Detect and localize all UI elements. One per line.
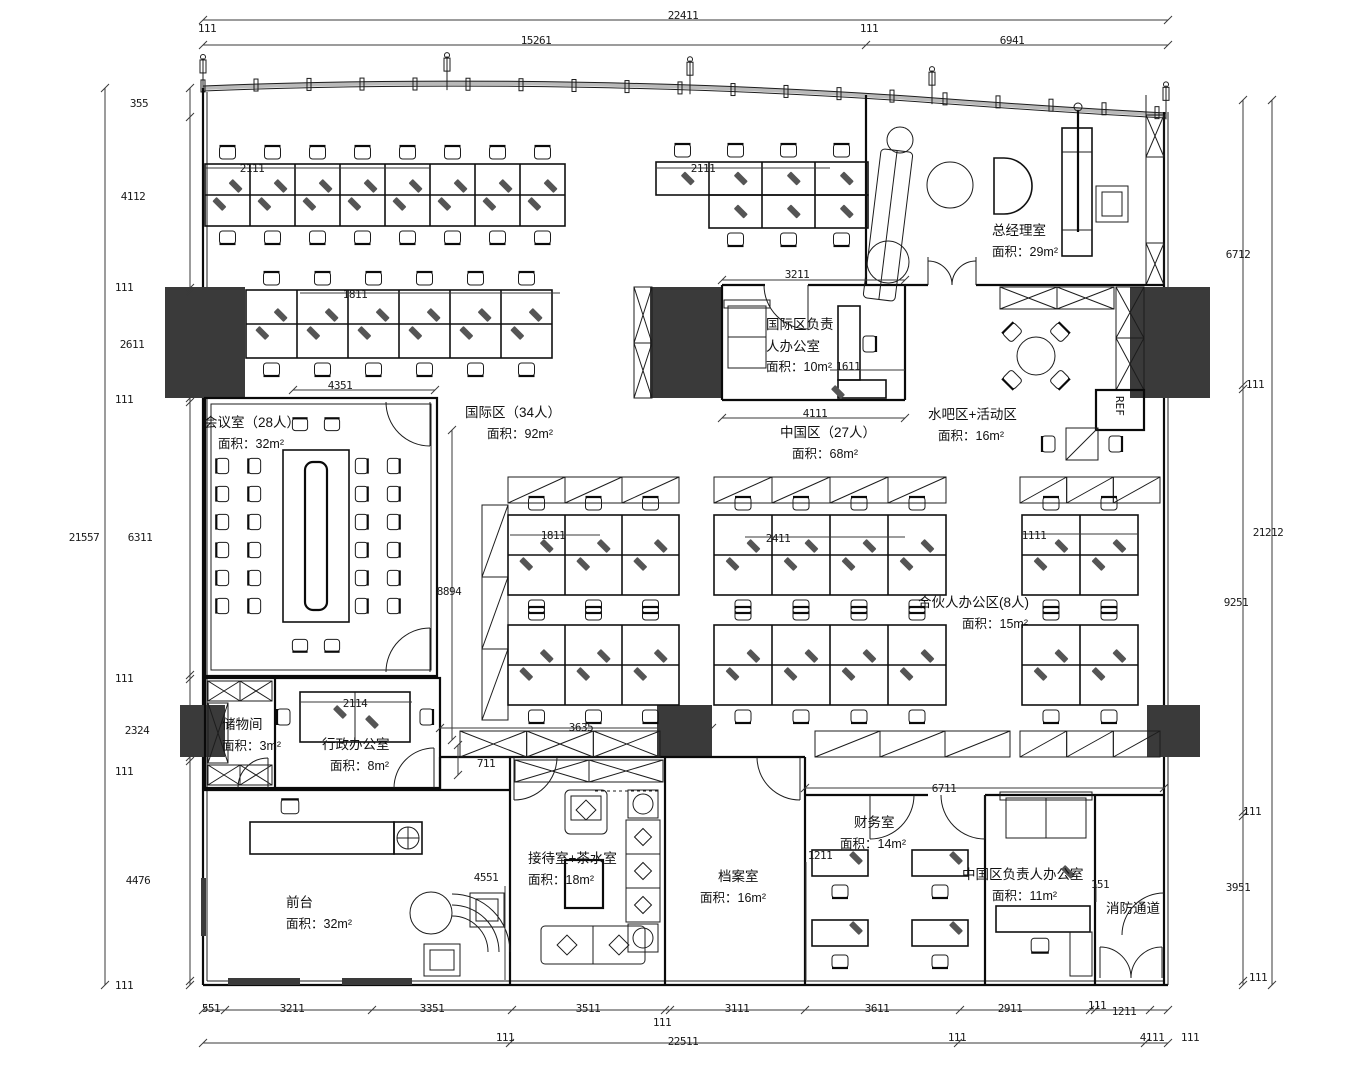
dimension-label: 8894 [437, 585, 462, 598]
dimension-label: 6711 [932, 782, 957, 795]
dimension-label: 3211 [280, 1002, 305, 1015]
dimension-label: 1111 [1022, 529, 1047, 542]
room-label-archive-room: 档案室 面积：16m² [718, 866, 766, 908]
dimension-label: 21212 [1253, 526, 1284, 539]
room-name: 人办公室 [766, 336, 834, 358]
room-name: 国际区（34人） [465, 402, 561, 424]
dimension-label: 111 [1243, 805, 1261, 818]
room-name: 水吧区+活动区 [928, 404, 1017, 426]
dimension-label: 111 [1181, 1031, 1199, 1044]
dimension-label: 4111 [803, 407, 828, 420]
dimension-label: 711 [477, 757, 495, 770]
dimension-label: 3351 [420, 1002, 445, 1015]
dimension-label: 111 [115, 393, 133, 406]
room-label-front-desk: 前台 面积：32m² [286, 892, 352, 934]
room-label-china-manager: 中国区负责人办公室 面积：11m² [962, 864, 1084, 906]
dimension-label: 3611 [865, 1002, 890, 1015]
dimension-label: 21557 [69, 531, 100, 544]
dimension-label: 2411 [766, 532, 791, 545]
dimension-label: 3211 [785, 268, 810, 281]
dimension-label: 3111 [725, 1002, 750, 1015]
room-name: 前台 [286, 892, 352, 914]
room-label-guest-tea-room: 接待室+茶水室 面积：18m² [528, 848, 617, 890]
dimension-label: 22411 [668, 9, 699, 22]
dimension-label: 3951 [1226, 881, 1251, 894]
dimension-label: 111 [1249, 971, 1267, 984]
room-label-water-bar: 水吧区+活动区 面积：16m² [928, 404, 1017, 446]
dimension-label: 551 [202, 1002, 220, 1015]
dimension-label: 6311 [128, 531, 153, 544]
dimension-label: 1811 [343, 288, 368, 301]
room-name: 储物间 [222, 714, 281, 736]
dimension-label: 111 [115, 281, 133, 294]
room-area: 面积：16m² [700, 888, 766, 908]
room-area: 面积：16m² [928, 426, 1017, 446]
dimension-label: 111 [860, 22, 878, 35]
room-label-admin-office: 行政办公室 面积：8m² [322, 734, 390, 776]
room-name: 档案室 [718, 866, 766, 888]
room-label-partner-office: 合伙人办公区(8人) 面积：15m² [918, 592, 1029, 634]
room-name: 消防通道 [1106, 898, 1160, 920]
room-label-finance-room: 财务室 面积：14m² [854, 812, 906, 854]
room-name: 接待室+茶水室 [528, 848, 617, 870]
dimension-label: 4351 [328, 379, 353, 392]
room-area: 面积：11m² [962, 886, 1084, 906]
dimension-label: 355 [130, 97, 148, 110]
room-label-intl-manager: 国际区负责 人办公室 面积：10m² [766, 314, 834, 377]
dimension-label: 3635 [569, 721, 594, 734]
dimension-label: 15261 [521, 34, 552, 47]
room-area: 面积：3m² [222, 736, 281, 756]
room-name: 合伙人办公区(8人) [918, 592, 1029, 614]
room-label-china-zone: 中国区（27人） 面积：68m² [780, 422, 876, 464]
dimension-label: 111 [653, 1016, 671, 1029]
fridge-label: REF [1113, 396, 1126, 416]
room-area: 面积：15m² [918, 614, 1029, 634]
dimension-label: 1811 [541, 529, 566, 542]
room-name: 会议室（28人） [204, 412, 300, 434]
room-area: 面积：14m² [840, 834, 906, 854]
dimension-label: 1611 [836, 360, 861, 373]
dimension-label: 4111 [1140, 1031, 1165, 1044]
room-label-international-zone: 国际区（34人） 面积：92m² [465, 402, 561, 444]
dimension-label: 6712 [1226, 248, 1251, 261]
dimension-label: 151 [1091, 878, 1109, 891]
dimension-label: 111 [1246, 378, 1264, 391]
room-area: 面积：29m² [992, 242, 1058, 262]
dimension-label: 111 [1088, 999, 1106, 1012]
room-name: 行政办公室 [322, 734, 390, 756]
room-name: 中国区负责人办公室 [962, 864, 1084, 886]
dimension-label: 1211 [1112, 1005, 1137, 1018]
dimension-label: 111 [115, 765, 133, 778]
dimension-label: 2911 [998, 1002, 1023, 1015]
dimension-label: 111 [496, 1031, 514, 1044]
dimension-label: 4476 [126, 874, 151, 887]
room-area: 面积：92m² [465, 424, 561, 444]
dimension-label: 111 [115, 979, 133, 992]
dimension-label: 2111 [691, 162, 716, 175]
room-name: 中国区（27人） [780, 422, 876, 444]
dimension-label: 22511 [668, 1035, 699, 1048]
dimension-label: 2114 [343, 697, 368, 710]
dimension-label: 1211 [808, 849, 833, 862]
dimension-label: 2111 [240, 162, 265, 175]
floor-plan-canvas: 总经理室 面积：29m² 国际区负责 人办公室 面积：10m² 水吧区+活动区 … [0, 0, 1354, 1065]
dimension-label: 3511 [576, 1002, 601, 1015]
room-area: 面积：18m² [528, 870, 617, 890]
room-area: 面积：10m² [766, 357, 834, 377]
dimension-label: 111 [948, 1031, 966, 1044]
room-label-storage-room: 储物间 面积：3m² [222, 714, 281, 756]
room-area: 面积：32m² [204, 434, 300, 454]
dimension-label: 4112 [121, 190, 146, 203]
dimension-label: 2611 [120, 338, 145, 351]
room-name: 财务室 [854, 812, 906, 834]
room-label-fire-exit: 消防通道 [1106, 898, 1160, 920]
dimension-label: 111 [115, 672, 133, 685]
dimension-label: 2324 [125, 724, 150, 737]
dimension-label: 9251 [1224, 596, 1249, 609]
room-label-general-manager: 总经理室 面积：29m² [992, 220, 1058, 262]
room-label-meeting-room: 会议室（28人） 面积：32m² [204, 412, 300, 454]
room-area: 面积：8m² [322, 756, 390, 776]
dimension-label: 111 [198, 22, 216, 35]
room-name: 总经理室 [992, 220, 1058, 242]
room-area: 面积：32m² [286, 914, 352, 934]
room-area: 面积：68m² [780, 444, 876, 464]
room-name: 国际区负责 [766, 314, 834, 336]
dimension-label: 4551 [474, 871, 499, 884]
dimension-label: 6941 [1000, 34, 1025, 47]
